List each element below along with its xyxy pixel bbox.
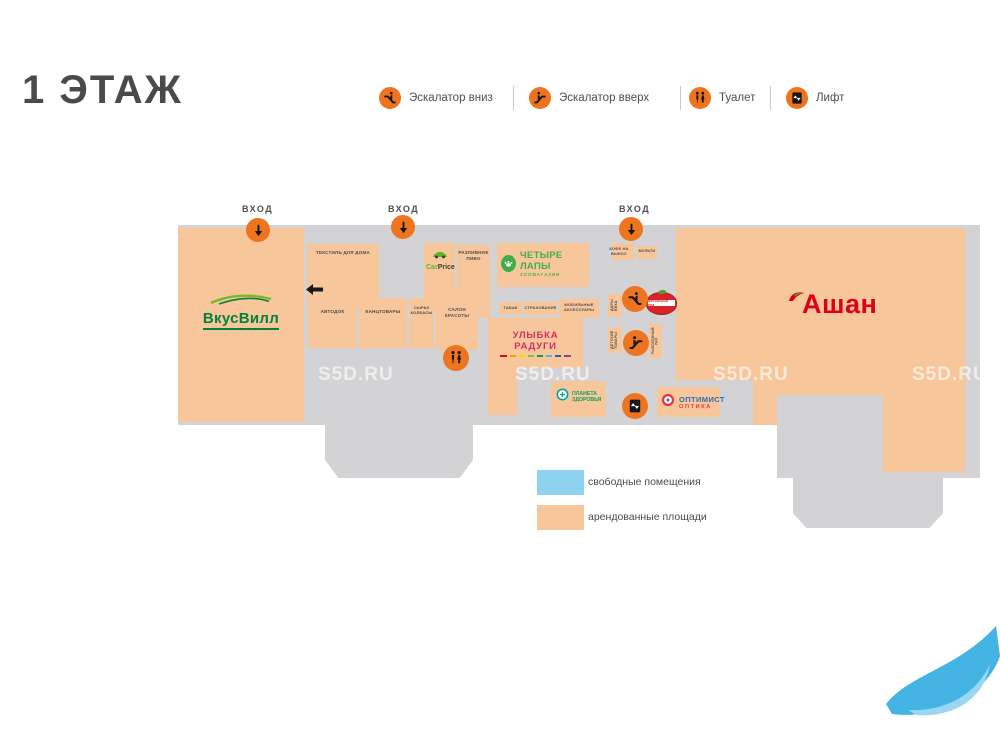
store-label-tekstil: ТЕКСТИЛЬ ДЛЯ ДОМА xyxy=(309,250,377,256)
store-kanctovary xyxy=(359,298,407,348)
escalator-down-icon xyxy=(379,87,401,109)
store-label-salon: САЛОН КРАСОТЫ xyxy=(438,307,476,319)
legend-separator xyxy=(513,86,514,110)
planeta-zdorovya-logo: ПЛАНЕТА ЗДОРОВЬЯ xyxy=(556,388,601,406)
legend-label-rented: арендованные площади xyxy=(588,511,707,523)
vkusvill-swoosh-icon xyxy=(205,292,277,305)
legend-item-lift: Лифт xyxy=(786,87,844,109)
chetyre-lapy-logo: ЧЕТЫРЕ ЛАПЫ ЗООМАГАЗИН xyxy=(501,250,587,277)
entrance-label: ВХОД xyxy=(242,204,273,214)
watermark: S5D.RU xyxy=(318,364,394,386)
store-auchan xyxy=(777,380,883,395)
kiosk-label-tabak: ТАБАК xyxy=(499,305,522,310)
carprice-logo: CarPrice xyxy=(426,246,454,271)
leaf-icon xyxy=(658,289,667,295)
planeta-circle-icon xyxy=(556,388,569,406)
lift-icon xyxy=(786,87,808,109)
escalator-up-icon xyxy=(623,330,649,356)
legend-separator xyxy=(770,86,771,110)
car-icon xyxy=(431,249,449,259)
kiosk-label-strahovanie: СТРАХОВАНИЕ xyxy=(524,305,557,310)
paw-icon xyxy=(501,255,516,272)
watermark: S5D.RU xyxy=(912,364,988,386)
toilet-icon xyxy=(443,345,469,371)
store-label-kanctovary: КАНЦТОВАРЫ xyxy=(360,309,406,315)
entrance-label: ВХОД xyxy=(619,204,650,214)
optimist-optika-logo: ОПТИМИСТ ОПТИКА xyxy=(661,393,725,412)
entrance-arrow-icon xyxy=(246,218,270,242)
store-unlabeled xyxy=(488,368,517,415)
optimist-circle-icon xyxy=(661,393,675,412)
auchan-logo: Ашан xyxy=(786,288,877,320)
decorative-wave xyxy=(868,612,1000,732)
legend-separator xyxy=(680,86,681,110)
escalator-up-icon xyxy=(529,87,551,109)
direction-left-arrow xyxy=(306,282,323,300)
legend-item-escalator-up: Эскалатор вверх xyxy=(529,87,649,109)
ulybka-radugi-logo: УЛЫБКА РАДУГИ xyxy=(492,330,579,357)
legend-label-free: свободные помещения xyxy=(588,476,701,488)
watermark: S5D.RU xyxy=(515,364,591,386)
kiosk-label-multi: МУЛЬТИ xyxy=(637,249,657,254)
legend-item-escalator-down: Эскалатор вниз xyxy=(379,87,493,109)
legend-swatch-free xyxy=(537,470,584,495)
kiosk-label-dary: ДАРЫ ВЕКА xyxy=(608,294,622,317)
kiosk-label-kofe: КОФЕ НА ВЫНОС xyxy=(604,247,634,257)
legend-swatch-rented xyxy=(537,505,584,530)
entrance-arrow-icon xyxy=(391,215,415,239)
myasnitsky-ryad-badge: МЯСНИЦКИЙ РЯД xyxy=(646,292,677,315)
escalator-down-icon xyxy=(622,286,648,312)
corridor-tab-left xyxy=(325,425,473,478)
legend-item-toilet: Туалет xyxy=(689,87,755,109)
floor-plan-page: 1 ЭТАЖ Эскалатор вниз Эскалатор вверх Ту… xyxy=(0,0,1000,750)
legend-label: Эскалатор вниз xyxy=(409,92,493,104)
store-auchan xyxy=(883,380,965,472)
kiosk-label-mobilnye: МОБИЛЬНЫЕ АКСЕССУАРЫ xyxy=(560,302,598,312)
lift-icon xyxy=(622,393,648,419)
legend-label: Лифт xyxy=(816,92,844,104)
store-auchan xyxy=(753,380,777,425)
vkusvill-logo: ВкусВилл xyxy=(196,292,286,328)
entrance-label: ВХОД xyxy=(388,204,419,214)
rainbow-dashes xyxy=(492,355,579,358)
entrance-arrow-icon xyxy=(619,217,643,241)
store-avtodok xyxy=(308,298,357,348)
store-salon-krasoty xyxy=(436,288,478,350)
kiosk-label-detskie: ДЕТСКИЕ ТОВАРЫ xyxy=(608,327,622,353)
store-label-syry: СЫРЫ/ КОЛБАСЫ xyxy=(409,305,434,315)
kiosk-label-rybolovny: РЫБОЛОВНЫЙ РАЙ xyxy=(649,324,662,358)
legend-label: Эскалатор вверх xyxy=(559,92,649,104)
watermark: S5D.RU xyxy=(713,364,789,386)
legend-label: Туалет xyxy=(719,92,755,104)
toilet-icon xyxy=(689,87,711,109)
page-title: 1 ЭТАЖ xyxy=(22,68,183,113)
store-label-razlivnoe: РАЗЛИВНОЕ ПИВО xyxy=(458,250,489,262)
store-label-avtodok: АВТОДОК xyxy=(310,309,355,315)
